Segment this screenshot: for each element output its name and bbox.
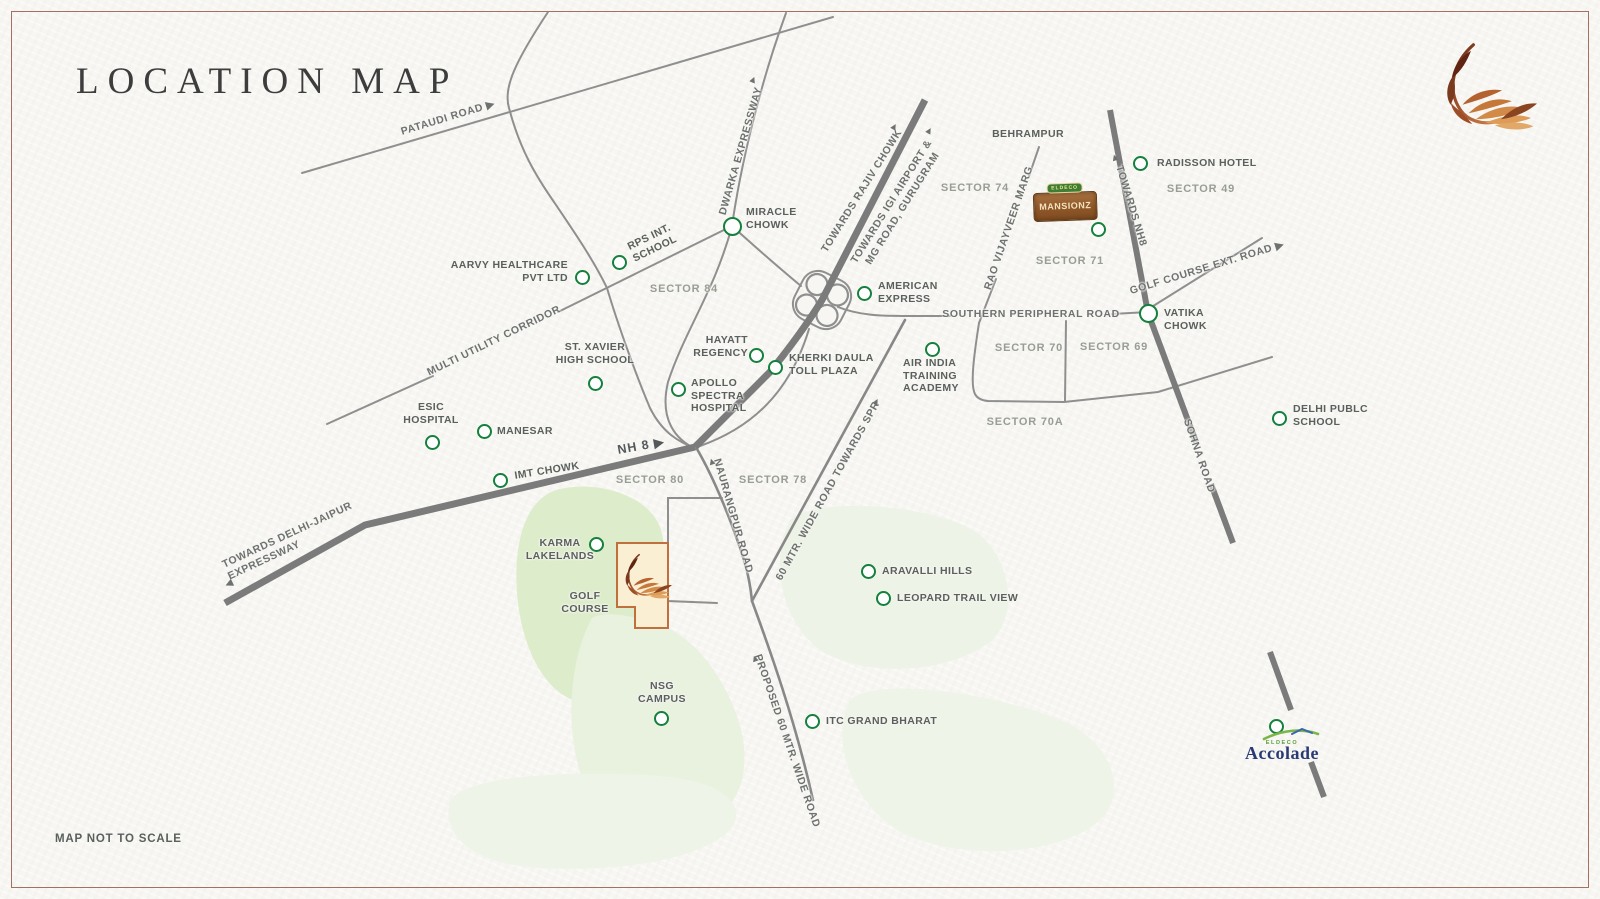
label-american-express: AMERICANEXPRESS [878, 280, 938, 305]
road-label-towards-nh8: TOWARDS NH8 [1113, 164, 1150, 248]
marker-manesar [477, 424, 492, 439]
marker-nsg-campus [654, 711, 669, 726]
marker-st-xavier-high-school [588, 376, 603, 391]
label-leopard-trail-view: LEOPARD TRAIL VIEW [897, 592, 1018, 605]
label-nsg-campus: NSGCAMPUS [638, 680, 686, 705]
marker-radisson-hotel [1133, 156, 1148, 171]
label-vatika-chowk: VATIKACHOWK [1164, 307, 1207, 332]
road-label-towards-igi-airport: TOWARDS IGI AIRPORT &MG ROAD, GURUGRAM [848, 138, 945, 273]
label-sector-80: SECTOR 80 [616, 474, 684, 486]
label-sector-70a: SECTOR 70A [987, 416, 1064, 428]
marker-aravalli-hills [861, 564, 876, 579]
mansionz-badge: ELDECO [1046, 182, 1083, 193]
mansionz-name: MANSIONZ [1033, 191, 1098, 222]
road-label-dwarka-expressway: DWARKA EXPRESSWAY [717, 86, 766, 217]
marker-delhi-public-school [1272, 411, 1287, 426]
accolade-name: Accolade [1232, 745, 1332, 762]
label-miracle-chowk: MIRACLECHOWK [746, 206, 797, 231]
marker-apollo-spectra-hospital [671, 382, 686, 397]
label-radisson-hotel: RADISSON HOTEL [1157, 157, 1257, 170]
road-label-pataudi-road: PATAUDI ROAD ▶ [400, 98, 497, 138]
location-map-page: LOCATION MAP MIRACLECHOWKRPS INT.SCHOOLA… [0, 0, 1600, 899]
label-behrampur: BEHRAMPUR [992, 128, 1064, 141]
road-label-sohna-road: SOHNA ROAD [1180, 417, 1217, 494]
label-delhi-public-school: DELHI PUBLCSCHOOL [1293, 403, 1368, 428]
road-label-towards-delhi-jaipur: TOWARDS DELHI-JAIPUREXPRESSWAY [220, 500, 359, 583]
label-sector-74: SECTOR 74 [941, 182, 1009, 194]
road-label-nh-8: NH 8 ▶ [616, 436, 665, 457]
labels-layer: MIRACLECHOWKRPS INT.SCHOOLAARVY HEALTHCA… [0, 0, 1600, 899]
marker-american-express [857, 286, 872, 301]
marker-miracle-chowk [723, 217, 742, 236]
label-sector-69: SECTOR 69 [1080, 341, 1148, 353]
road-label-southern-peripheral-road: SOUTHERN PERIPHERAL ROAD [942, 308, 1120, 321]
road-label-multi-utility-corridor: MULTI UTILITY CORRIDOR [425, 303, 563, 379]
accolade-logo: ELDECO Accolade [1232, 728, 1332, 762]
label-manesar: MANESAR [497, 425, 553, 438]
marker-mansionz-site [1091, 222, 1106, 237]
marker-esic-hospital [425, 435, 440, 450]
label-karma-lakelands: KARMALAKELANDS [526, 537, 594, 562]
label-aarvy-healthcare: AARVY HEALTHCAREPVT LTD [451, 259, 568, 284]
road-arrow-dwarka-expressway: ▲ [746, 73, 759, 87]
marker-air-india-training-academy [925, 342, 940, 357]
road-arrow-towards-igi-airport: ▲ [922, 124, 936, 138]
marker-imt-chowk [493, 473, 508, 488]
map-disclaimer: MAP NOT TO SCALE [55, 833, 182, 845]
road-label-proposed-sixty-mtr-road: PROPOSED 60 MTR. WIDE ROAD [751, 653, 822, 830]
mansionz-logo: ELDECO MANSIONZ [1032, 175, 1098, 222]
marker-itc-grand-bharat [805, 714, 820, 729]
road-label-golf-course-ext-road: GOLF COURSE EXT. ROAD ▶ [1128, 239, 1285, 298]
label-kherki-daula-toll-plaza: KHERKI DAULATOLL PLAZA [789, 352, 874, 377]
marker-hayatt-regency [749, 348, 764, 363]
label-apollo-spectra-hospital: APOLLOSPECTRAHOSPITAL [691, 377, 747, 415]
label-hayatt-regency: HAYATTREGENCY [693, 334, 748, 359]
label-aravalli-hills: ARAVALLI HILLS [882, 565, 972, 578]
label-esic-hospital: ESICHOSPITAL [403, 401, 459, 426]
label-sector-71: SECTOR 71 [1036, 255, 1104, 267]
accolade-swoosh-icon [1260, 727, 1322, 741]
marker-aarvy-healthcare [575, 270, 590, 285]
marker-leopard-trail-view [876, 591, 891, 606]
label-rps-int-school: RPS INT.SCHOOL [625, 221, 678, 264]
label-sector-49: SECTOR 49 [1167, 183, 1235, 195]
marker-rps-int-school [612, 255, 627, 270]
marker-kherki-daula-toll-plaza [768, 360, 783, 375]
label-sector-78: SECTOR 78 [739, 474, 807, 486]
marker-vatika-chowk [1139, 304, 1158, 323]
label-st-xavier-high-school: ST. XAVIERHIGH SCHOOL [556, 341, 635, 366]
label-air-india-training-academy: AIR INDIATRAININGACADEMY [903, 357, 959, 395]
road-arrow-towards-nh8: ▲ [1109, 151, 1122, 165]
label-sector-70: SECTOR 70 [995, 342, 1063, 354]
label-imt-chowk: IMT CHOWK [514, 460, 581, 483]
label-golf-course: GOLFCOURSE [561, 590, 608, 615]
label-itc-grand-bharat: ITC GRAND BHARAT [826, 715, 937, 728]
label-sector-84: SECTOR 84 [650, 283, 718, 295]
road-label-sixty-mtr-wide-road: 60 MTR. WIDE ROAD TOWARDS SPR [773, 399, 882, 582]
